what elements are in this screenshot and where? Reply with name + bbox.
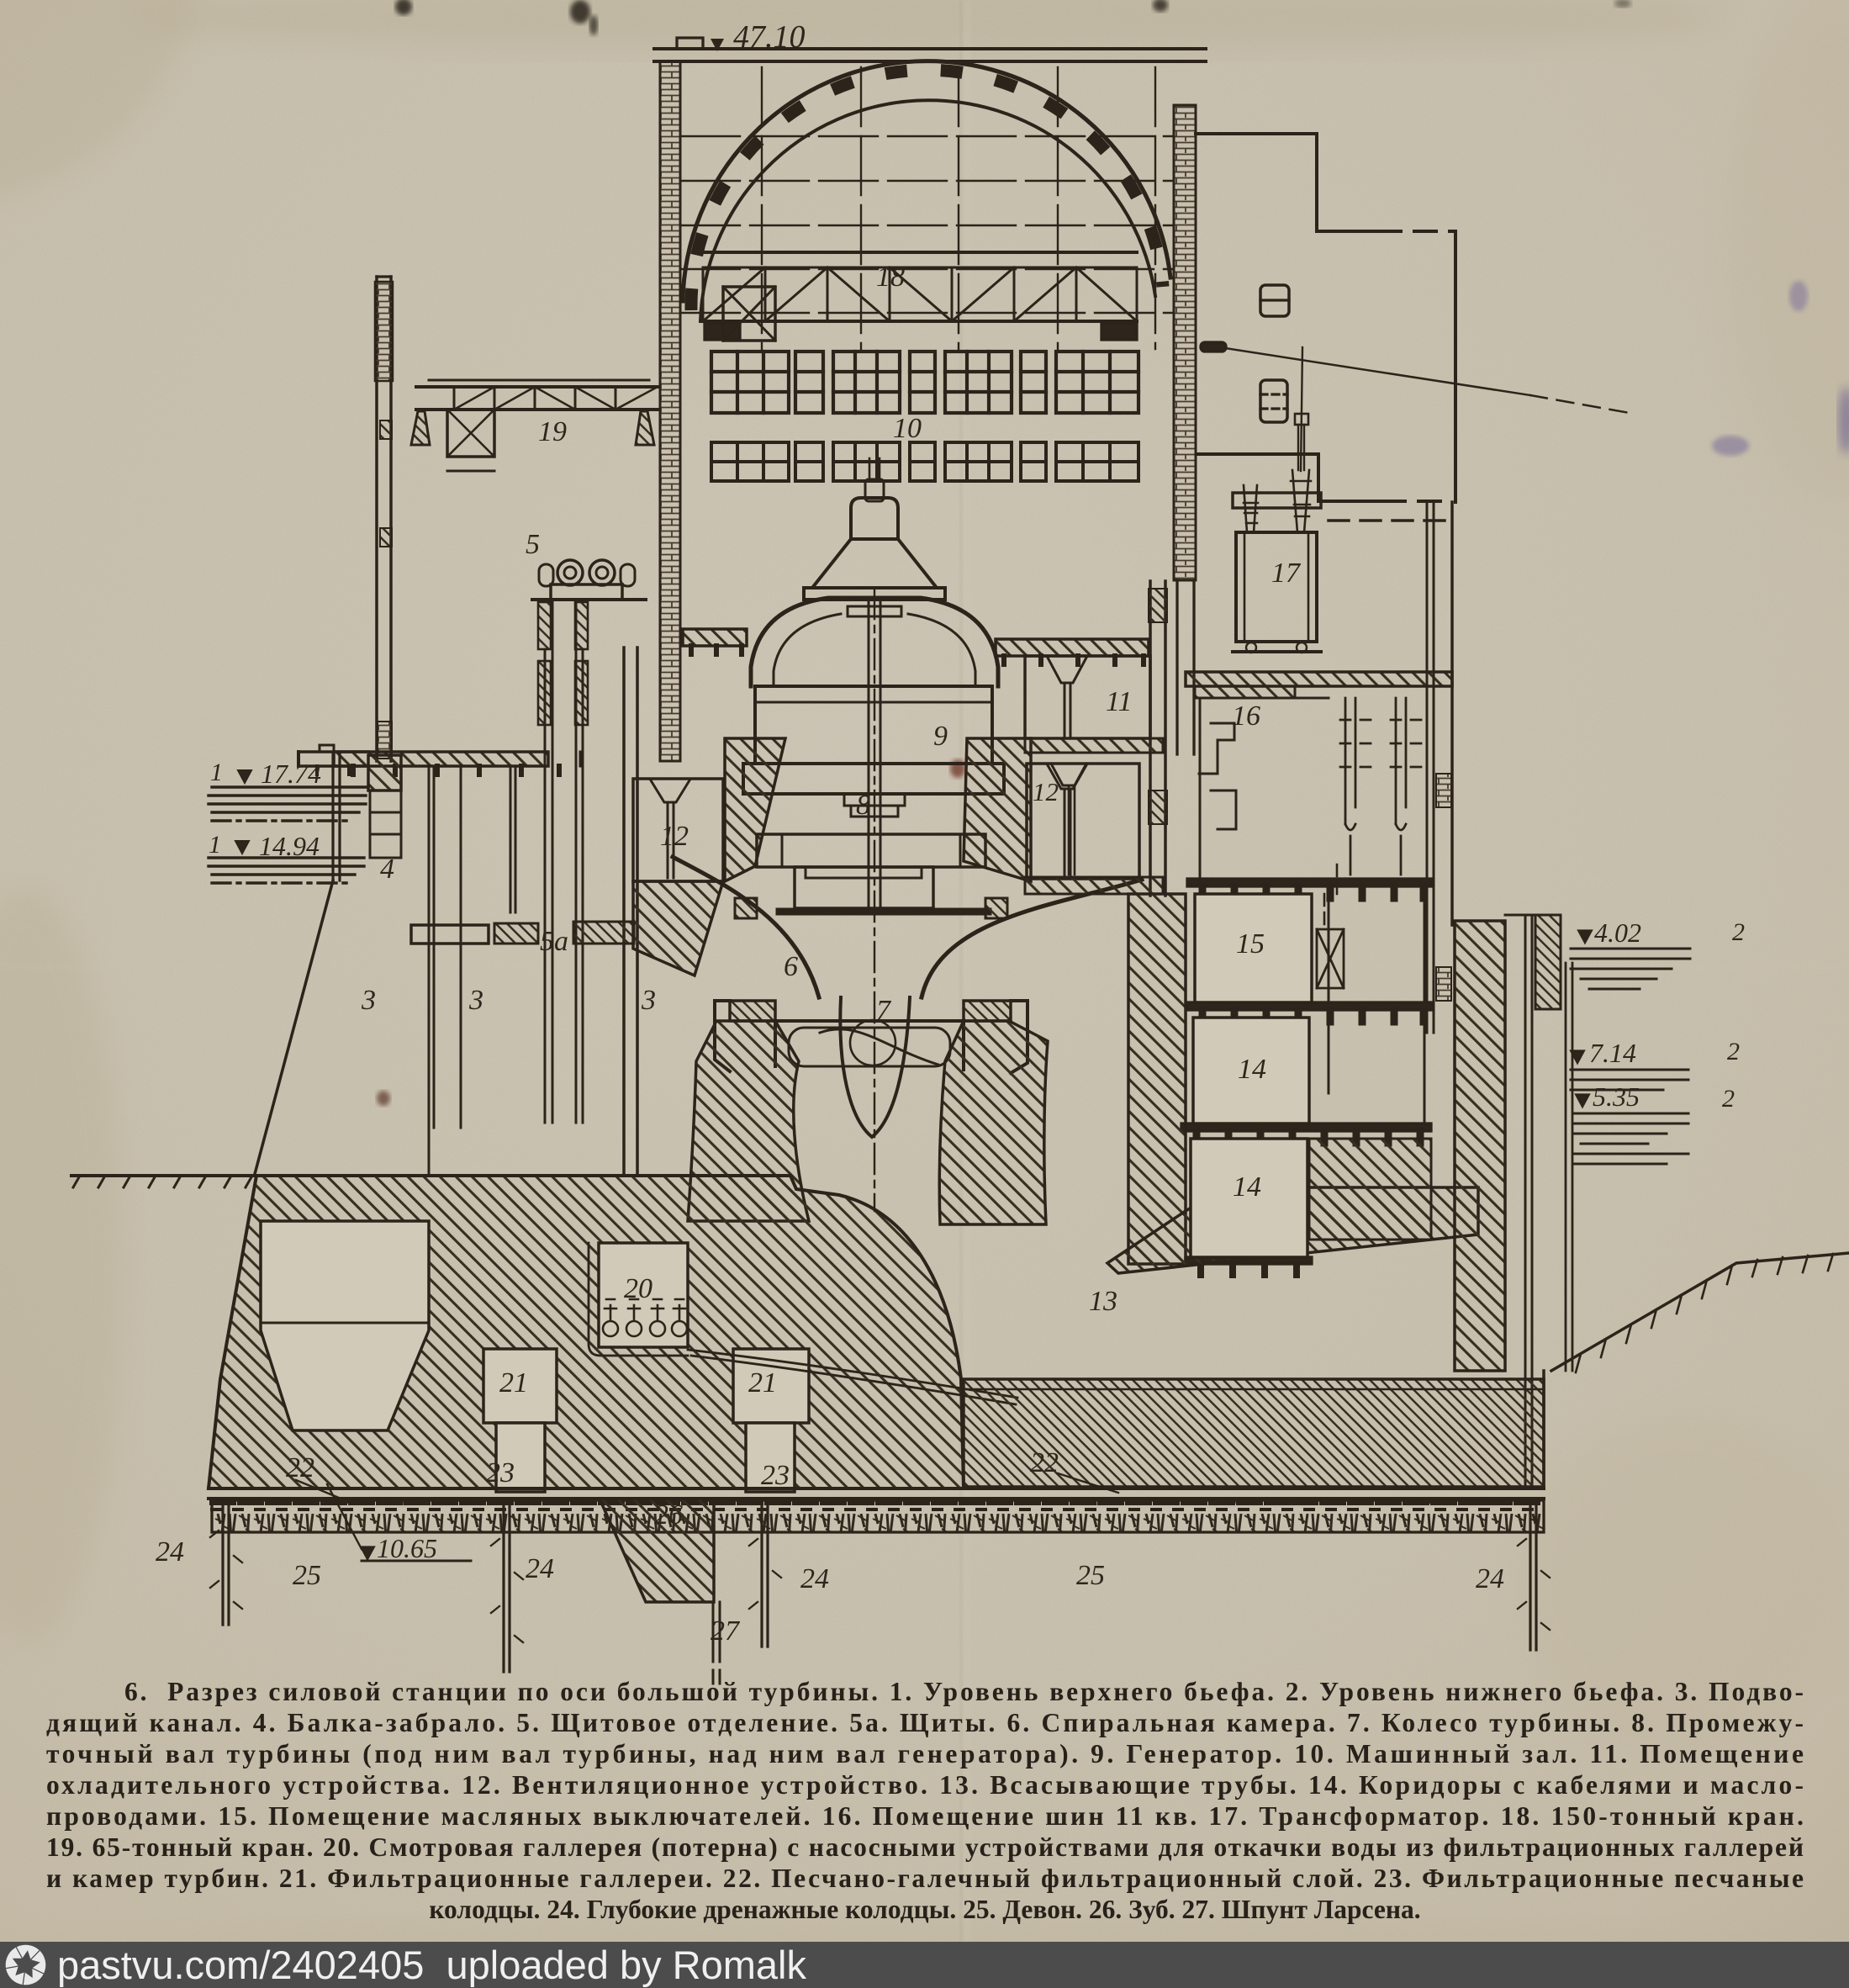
svg-text:14: 14 (1233, 1171, 1261, 1203)
svg-text:2: 2 (1727, 1038, 1740, 1065)
svg-text:21: 21 (499, 1367, 528, 1398)
svg-text:10.65: 10.65 (377, 1533, 437, 1563)
svg-text:19: 19 (538, 416, 567, 447)
svg-text:14: 14 (1238, 1054, 1266, 1085)
svg-text:17: 17 (1271, 558, 1302, 589)
svg-text:5: 5 (526, 529, 540, 560)
svg-text:27: 27 (711, 1615, 741, 1647)
svg-text:12: 12 (1033, 777, 1059, 806)
svg-text:5а: 5а (540, 926, 568, 957)
svg-text:7.14: 7.14 (1589, 1038, 1636, 1068)
svg-text:24: 24 (800, 1563, 829, 1594)
svg-text:3: 3 (641, 985, 656, 1016)
svg-text:17.74: 17.74 (261, 759, 321, 789)
svg-text:1: 1 (209, 831, 221, 859)
svg-text:дящий канал. 4. Балка-забрало.: дящий канал. 4. Балка-забрало. 5. Щитово… (46, 1708, 1804, 1737)
svg-text:колодцы. 24. Глубокие дренажны: колодцы. 24. Глубокие дренажные колодцы.… (429, 1895, 1420, 1924)
svg-text:26: 26 (654, 1499, 683, 1531)
svg-text:21: 21 (748, 1367, 777, 1398)
svg-text:25: 25 (293, 1560, 321, 1591)
svg-text:24: 24 (526, 1553, 554, 1584)
svg-text:23: 23 (761, 1460, 790, 1491)
svg-text:pastvu.com/2402405 uploaded b: pastvu.com/2402405 uploaded by Romalk (57, 1943, 806, 1987)
svg-text:24: 24 (156, 1536, 184, 1568)
svg-text:19. 65-тонный кран. 20. Смотро: 19. 65-тонный кран. 20. Смотровая галлер… (46, 1832, 1804, 1862)
svg-text:2: 2 (1732, 918, 1745, 946)
svg-text:22: 22 (1030, 1447, 1059, 1478)
svg-text:7: 7 (876, 995, 892, 1026)
svg-text:4: 4 (380, 854, 394, 885)
svg-text:15: 15 (1236, 928, 1265, 960)
svg-text:6: 6 (784, 951, 798, 982)
svg-text:6. Разрез силовой станции по: 6. Разрез силовой станции по оси большой… (124, 1677, 1804, 1706)
svg-text:25: 25 (1076, 1560, 1105, 1591)
svg-text:9: 9 (933, 721, 948, 752)
svg-text:13: 13 (1089, 1286, 1117, 1317)
svg-text:14.94: 14.94 (259, 831, 320, 861)
svg-text:10: 10 (893, 413, 922, 444)
svg-text:5.35: 5.35 (1593, 1081, 1640, 1112)
svg-text:20: 20 (624, 1273, 652, 1304)
svg-text:3: 3 (468, 985, 483, 1016)
svg-text:47.10: 47.10 (733, 19, 806, 55)
svg-text:18: 18 (876, 262, 905, 293)
svg-text:и камер турбин. 21. Фильтрацио: и камер турбин. 21. Фильтрационные галле… (46, 1864, 1804, 1893)
svg-text:3: 3 (361, 985, 376, 1016)
svg-text:22: 22 (286, 1452, 314, 1483)
svg-text:16: 16 (1232, 701, 1260, 732)
svg-text:8: 8 (856, 790, 870, 821)
svg-text:12: 12 (660, 821, 689, 852)
svg-text:11: 11 (1106, 686, 1132, 717)
svg-text:23: 23 (486, 1457, 515, 1488)
svg-text:1: 1 (210, 759, 223, 786)
svg-text:4.02: 4.02 (1594, 917, 1641, 948)
svg-text:24: 24 (1476, 1563, 1504, 1594)
svg-text:2: 2 (1722, 1085, 1735, 1113)
